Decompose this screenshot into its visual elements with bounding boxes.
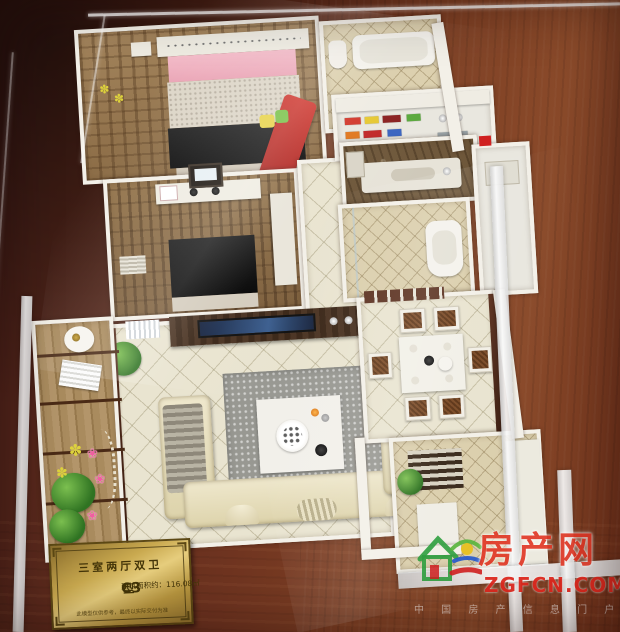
watermark-tagline: 中 国 房 产 信 息 门 户 — [414, 601, 619, 616]
pebble-border — [88, 428, 119, 509]
plaque-area: 建筑面积约：116.08㎡ — [121, 578, 200, 592]
watermark-domain: ZGFCN.COM — [484, 573, 620, 597]
house-sun-logo-icon — [412, 527, 482, 595]
plaque-corner-ornament — [52, 548, 61, 557]
deck-beam — [40, 398, 122, 406]
yellow-burst-plant-icon: ✽ — [68, 440, 83, 460]
watermark-site-name: 房产网 — [478, 533, 598, 569]
sofa-cushion — [224, 504, 259, 526]
sofa-throw-blanket — [162, 403, 207, 493]
yellow-burst-plant-icon: ✽ — [56, 465, 69, 482]
spec-plaque: 三室两厅双卫 C3型建筑面积约：116.08㎡ 此模型仅供参考，最终以实际交付为… — [48, 538, 194, 630]
photo-house-model-scene: ✽ ✽ — [0, 0, 620, 632]
garden-shrub — [48, 508, 86, 544]
site-watermark: 房产网 ZGFCN.COM 中 国 房 产 信 息 门 户 — [412, 527, 620, 632]
plaque-corner-ornament — [177, 542, 186, 551]
pink-flower-icon: ❀ — [86, 510, 98, 524]
